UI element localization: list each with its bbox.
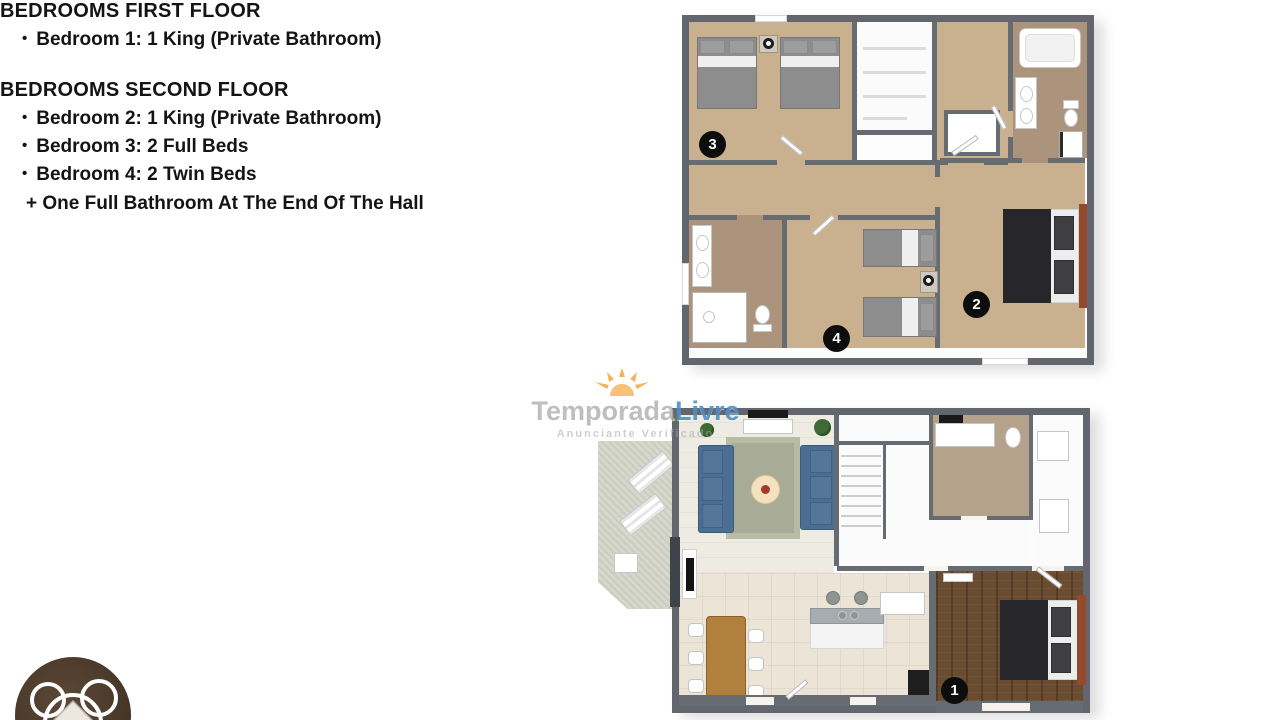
hall-closet [944, 110, 1000, 156]
tv [748, 410, 788, 418]
pillow [1051, 607, 1071, 637]
king-bed-comforter [1003, 209, 1051, 303]
kitchen-counter-base [810, 623, 884, 649]
wall [857, 130, 937, 135]
toilet-tank [1063, 100, 1079, 109]
wall [1008, 22, 1013, 162]
bathtub [1019, 28, 1081, 68]
stove [908, 670, 929, 697]
tv-console [743, 419, 793, 434]
shelf [863, 71, 926, 74]
entry-closet [1039, 499, 1069, 533]
dining-chair [688, 679, 704, 693]
sun-icon [514, 368, 729, 398]
door-gap [850, 697, 876, 705]
toilet-tank [753, 324, 772, 332]
sofa [800, 445, 836, 530]
stair-tread [841, 505, 881, 507]
toilet [1005, 427, 1021, 448]
door-gap [1008, 111, 1013, 137]
canister [838, 611, 847, 620]
toilet [755, 305, 770, 324]
property-logo [15, 657, 131, 720]
bedroom4-marker: 4 [823, 325, 850, 352]
dining-table [706, 616, 746, 700]
stair-tread [841, 525, 881, 527]
door-gap [924, 566, 948, 571]
wall [929, 415, 933, 518]
shower [1059, 131, 1083, 158]
stair-railing [883, 445, 886, 539]
wall [1029, 415, 1033, 520]
twin-bed [863, 297, 937, 337]
door-gap [982, 703, 1030, 711]
lamp [763, 38, 774, 49]
wall [852, 22, 857, 165]
stair-tread [841, 515, 881, 517]
door-gap [737, 215, 763, 220]
bathroom-sink-counter [939, 415, 963, 423]
second-floor-plan: 3 [682, 15, 1094, 365]
bathroom-hall-floor [931, 518, 1029, 566]
first-floor-heading: BEDROOMS FIRST FLOOR [0, 0, 460, 23]
hall-bathroom-note: + One Full Bathroom At The End Of The Ha… [26, 193, 460, 215]
shelf [863, 47, 926, 50]
twin-bed [863, 229, 937, 267]
bar-stool [826, 591, 840, 605]
wall [940, 158, 1085, 163]
headboard [1077, 595, 1086, 685]
full-bed [780, 37, 840, 109]
first-floor-list: Bedroom 1: 1 King (Private Bathroom) [0, 29, 460, 51]
bedroom-info-panel: BEDROOMS FIRST FLOOR Bedroom 1: 1 King (… [0, 0, 460, 215]
shower [692, 292, 747, 343]
second-floor-list: Bedroom 2: 1 King (Private Bathroom) Bed… [0, 108, 460, 186]
dining-chair [688, 651, 704, 665]
window [755, 15, 787, 22]
shelf [863, 117, 907, 120]
king-bed-comforter [1000, 600, 1048, 680]
bedroom-1-item: Bedroom 1: 1 King (Private Bathroom) [22, 29, 460, 51]
dining-chair [748, 629, 764, 643]
bathroom-vanity [1015, 77, 1037, 129]
floorplan-page: BEDROOMS FIRST FLOOR Bedroom 1: 1 King (… [0, 0, 1280, 720]
bedroom-3-item: Bedroom 3: 2 Full Beds [22, 136, 460, 158]
deck-step [614, 553, 638, 573]
bedroom-2-item: Bedroom 2: 1 King (Private Bathroom) [22, 108, 460, 130]
refrigerator [880, 592, 925, 615]
sofa [698, 445, 734, 533]
pillow [1054, 216, 1074, 250]
second-floor-heading: BEDROOMS SECOND FLOOR [0, 79, 460, 102]
stair-landing [839, 415, 931, 441]
door-gap [961, 516, 987, 520]
bedroom2-marker: 2 [963, 291, 990, 318]
coffee-table-decor [761, 485, 770, 494]
plant [700, 423, 714, 437]
dining-chair [748, 657, 764, 671]
wall [929, 571, 936, 706]
bedroom1-marker: 1 [941, 677, 968, 704]
bedroom-4-item: Bedroom 4: 2 Twin Beds [22, 164, 460, 186]
door-gap [777, 160, 805, 165]
door-gap [1022, 158, 1048, 163]
bathroom-vanity [692, 225, 712, 287]
pillow [1054, 260, 1074, 294]
full-bed [697, 37, 757, 109]
shower [1037, 431, 1069, 461]
canister [850, 611, 859, 620]
first-floor-plan: 1 [598, 403, 1093, 720]
kitchen-counter [810, 608, 884, 624]
stair-tread [841, 485, 881, 487]
bathroom-vanity [935, 423, 995, 447]
wall [782, 220, 787, 348]
stair-tread [841, 495, 881, 497]
wall [679, 695, 931, 706]
headboard [1079, 204, 1087, 308]
plant [814, 419, 831, 436]
closet-door [943, 573, 973, 582]
door-gap [935, 177, 940, 207]
stair-tread [841, 475, 881, 477]
house-with-ears-logo [15, 657, 131, 720]
lamp [923, 275, 934, 286]
fireplace-screen [686, 558, 694, 591]
window [982, 358, 1028, 365]
stair-tread [841, 455, 881, 457]
upper-hallway-floor [689, 165, 940, 220]
dining-chair [688, 623, 704, 637]
sliding-glass-door [670, 537, 680, 607]
shelf [863, 95, 926, 98]
bedroom3-marker: 3 [699, 131, 726, 158]
window [682, 263, 689, 305]
toilet [1064, 109, 1078, 127]
door-gap [746, 697, 774, 705]
wall [932, 22, 937, 165]
pillow [1051, 643, 1071, 673]
bar-stool [854, 591, 868, 605]
stair-tread [841, 465, 881, 467]
